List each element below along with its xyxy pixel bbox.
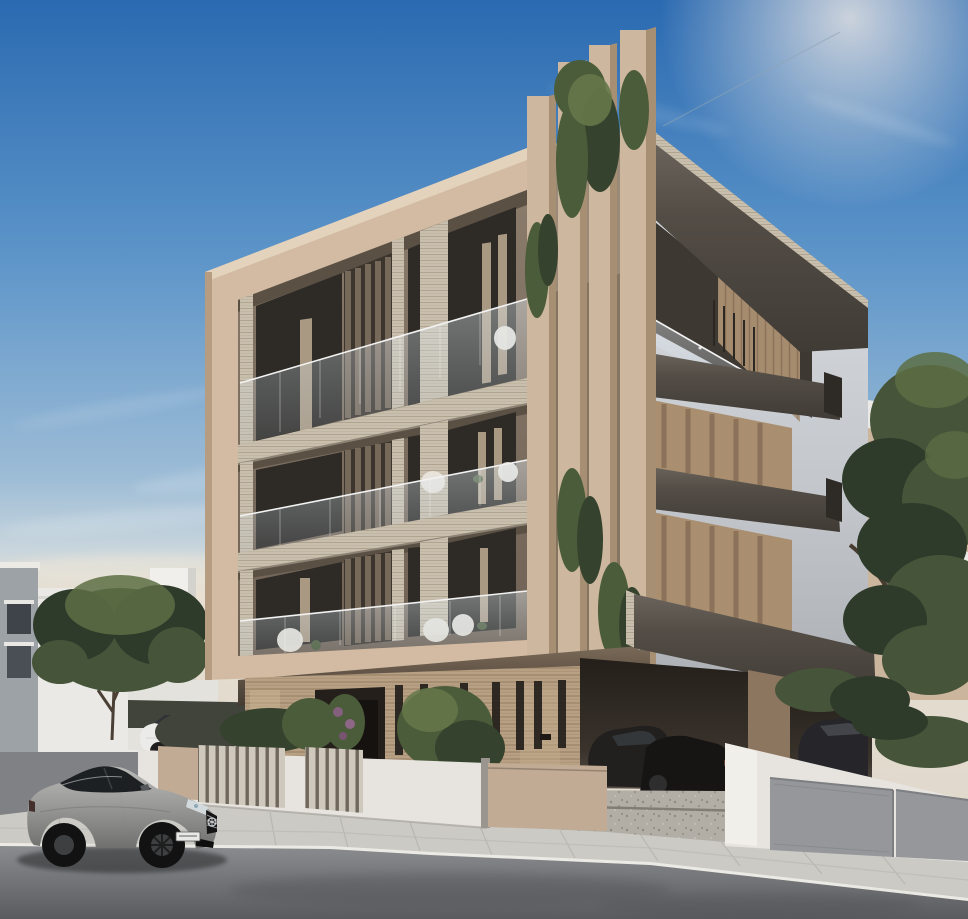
- architectural-render: Photorealistic rendering of a modern fou…: [0, 0, 968, 919]
- sliding-gate-beige: [488, 763, 607, 831]
- render-canvas: Photorealistic rendering of a modern fou…: [0, 0, 968, 919]
- sw-frame-left-arris: [205, 272, 212, 680]
- se-window: [824, 372, 842, 418]
- fence-slat-panel: [198, 745, 285, 808]
- rim-spokes: [151, 834, 173, 856]
- headlight-lens: [194, 804, 198, 808]
- tree-canopy: [148, 627, 208, 683]
- rear-rim: [54, 835, 74, 855]
- tree-canopy: [32, 640, 88, 684]
- grey-gate-panel: [896, 790, 968, 861]
- balcony-rail: [4, 600, 34, 604]
- asphalt-patch: [600, 893, 920, 917]
- asphalt-patch: [230, 874, 670, 906]
- se-window: [826, 478, 842, 522]
- fence-slat-panel: [305, 747, 363, 813]
- fin-1: [527, 94, 556, 676]
- balcony-rail: [4, 642, 34, 646]
- grey-building-window: [7, 604, 31, 634]
- dark-car-wheel: [649, 775, 667, 793]
- bougainvillea: [325, 694, 365, 750]
- tree-canopy-light: [65, 575, 175, 635]
- taillight: [29, 800, 35, 812]
- grey-building-window: [7, 646, 31, 678]
- white-pillar: [725, 743, 757, 846]
- tree-overhang-leaves: [852, 704, 928, 740]
